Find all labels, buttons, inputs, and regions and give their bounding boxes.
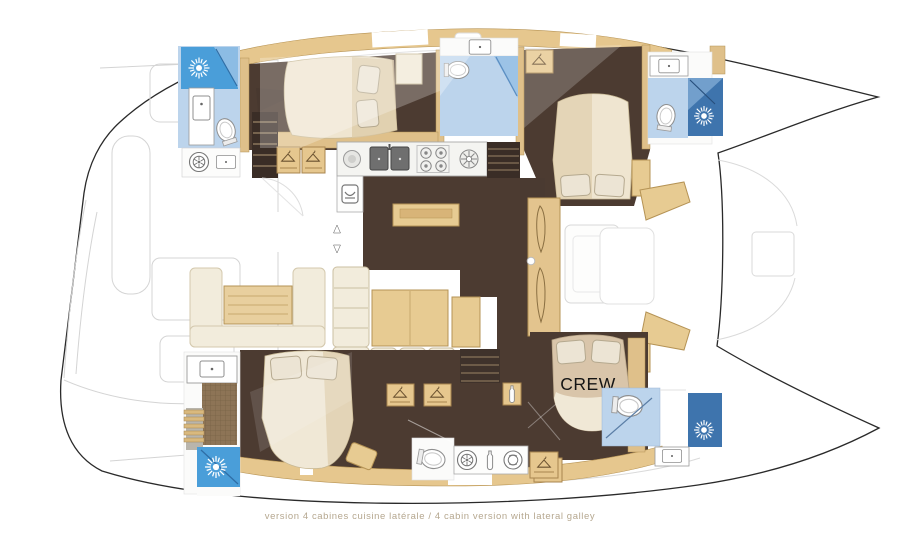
wardrobe (302, 147, 325, 173)
side-cabinet (452, 297, 480, 347)
pillow (560, 174, 590, 197)
pillow (556, 340, 586, 364)
tiled-floor (202, 383, 237, 445)
shower-stall (688, 393, 722, 447)
wardrobe (530, 452, 558, 478)
shower-sun-icon (694, 106, 714, 126)
washing-machine-icon (190, 153, 209, 172)
wardrobe (424, 384, 451, 406)
floor-plan-page: CREW version 4 cabines cuisine latérale … (0, 0, 900, 537)
pillow (591, 340, 621, 364)
sink-icon (659, 59, 679, 73)
wardrobe (277, 147, 300, 173)
wardrobe (387, 384, 414, 406)
pillow (594, 174, 624, 197)
sink-icon (200, 361, 224, 377)
galley-stairs (487, 142, 520, 178)
port-forward-bathroom (648, 52, 723, 144)
sink-icon (216, 156, 235, 169)
shower-sun-icon (205, 456, 227, 478)
louver-steps (184, 408, 204, 450)
shower-sun-icon (189, 58, 210, 79)
bottle-cabinet (503, 383, 521, 405)
refrigerator-icon (342, 185, 358, 203)
sink-icon (662, 450, 681, 463)
washing-machine-icon (458, 451, 477, 470)
catamaran-floor-plan: CREW version 4 cabines cuisine latérale … (0, 0, 900, 537)
plan-caption: version 4 cabines cuisine latérale / 4 c… (265, 511, 595, 522)
sink-icon (469, 40, 491, 54)
starboard-stairs (460, 349, 500, 385)
forward-lounge-pad (600, 228, 654, 304)
refrigerator-dial-icon (504, 451, 522, 469)
starboard-aft-bathroom (184, 352, 240, 496)
port-aft-bathroom (178, 46, 240, 177)
port-mid-bathroom (440, 38, 518, 136)
round-burner-icon (460, 150, 478, 168)
shower-sun-icon (694, 420, 714, 440)
